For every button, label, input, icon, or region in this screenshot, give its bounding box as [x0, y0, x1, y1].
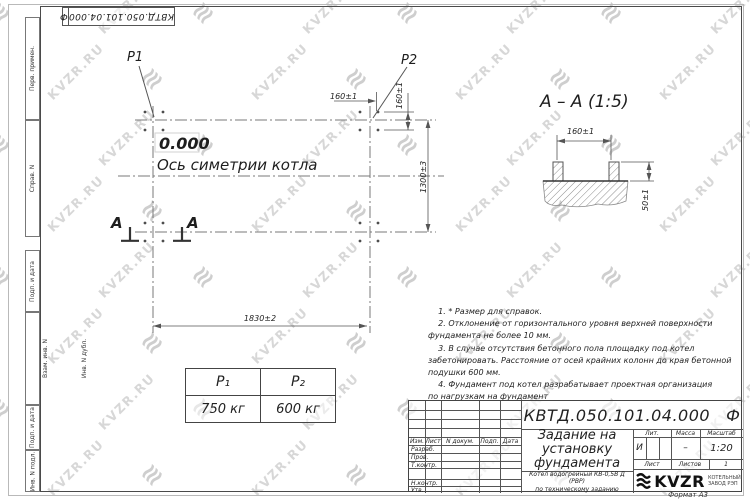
elevation-mark: 0.000	[159, 134, 210, 153]
load-point-leaders	[139, 66, 407, 118]
dim-bolt-spacing-y: 160±1	[395, 82, 404, 109]
tb-document-title: Задание на установку фундамента	[521, 429, 633, 471]
tb-sheet-label: Лист	[633, 459, 671, 469]
section-letter-left: А	[111, 214, 123, 232]
tb-designation-suffix: Ф	[726, 406, 740, 425]
tb-role-tkontr: Т.контр.	[411, 462, 441, 469]
dim-foundation-height: 1300±3	[419, 161, 428, 193]
tb-scale-label: Масштаб	[700, 429, 743, 437]
note-line: подушки 600 мм.	[428, 367, 740, 379]
tb-col-izm: Изм.	[409, 437, 425, 445]
note-line: 2. Отклонение от горизонтального уровня …	[428, 318, 740, 330]
dim-section-height: 50±1	[641, 189, 650, 211]
tb-product-line1: Котел водогрейный КВ-0,5В Д (РВР)	[521, 471, 633, 486]
tb-designation-number: КВТД.050.101.04.000	[524, 406, 710, 425]
tb-lit-value: И	[633, 437, 646, 459]
tb-product-line2: по техническому заданию	[535, 486, 618, 494]
tb-product-name: Котел водогрейный КВ-0,5В Д (РВР) по тех…	[521, 471, 633, 493]
tb-role-prov: Пров.	[411, 454, 441, 461]
note-line: забетонировать. Расстояние от осей крайн…	[428, 355, 740, 367]
load-point-p1-label: Р1	[127, 50, 143, 65]
tb-role-nkontr: Н.контр.	[411, 480, 441, 487]
section-view-title: А – А (1:5)	[540, 92, 629, 112]
loads-table-header-p1: Р₁	[186, 369, 260, 395]
loads-table: Р₁ Р₂ 750 кг 600 кг	[185, 368, 336, 423]
loads-table-header-p2: Р₂	[260, 369, 335, 395]
drawing-sheet: ≋KVZR.RU≋KVZR.RU≋KVZR.RU≋KVZR.RUKVZR.RU≋…	[0, 0, 750, 500]
tb-col-podp: Подп.	[479, 437, 500, 445]
tb-col-list: Лист	[425, 437, 441, 445]
loads-table-value-p2: 600 кг	[260, 396, 335, 422]
tb-scale-value: 1:20	[700, 437, 743, 459]
dim-bolt-spacing-x: 160±1	[330, 92, 357, 101]
tb-sheets-count: 1	[709, 459, 743, 469]
tb-logo-tagline-2: ЗАВОД РЭП	[708, 481, 741, 487]
note-line: 4. Фундамент под котел разрабатывает про…	[428, 379, 740, 391]
boiler-symmetry-axis-label: Ось симетрии котла	[157, 156, 317, 174]
tb-role-razrab: Разраб.	[411, 446, 441, 453]
tb-designation: КВТД.050.101.04.000 Ф	[521, 401, 743, 429]
technical-notes: 1. * Размер для справок. 2. Отклонение о…	[428, 306, 740, 404]
section-letter-right: А	[187, 214, 199, 232]
tb-role-utv: Утв.	[411, 487, 441, 494]
tb-col-ndoc: N докум.	[441, 437, 479, 445]
tb-lit-label: Лит.	[633, 429, 671, 437]
title-block: Изм. Лист N докум. Подп. Дата Разраб. Пр…	[408, 400, 742, 492]
note-line: фундамента не более 10 мм.	[428, 330, 740, 342]
tb-sheets-label: Листов	[671, 459, 709, 469]
tb-mass-label: Масса	[671, 429, 700, 437]
tb-company-logo: KVZR КОТЕЛЬНЫЙ ЗАВОД РЭП	[633, 469, 743, 493]
tb-logo-text: KVZR	[654, 472, 705, 491]
kvzr-logo-icon	[635, 472, 651, 490]
loads-table-value-row: 750 кг 600 кг	[186, 395, 335, 422]
dim-foundation-width: 1830±2	[236, 314, 284, 323]
section-cut-marks	[121, 227, 191, 241]
format-note: Формат А3	[648, 491, 728, 499]
section-view-geometry	[543, 162, 628, 207]
note-line: 3. В случае отсутствия бетонного пола пл…	[428, 343, 740, 355]
note-line: 1. * Размер для справок.	[428, 306, 740, 318]
loads-table-header-row: Р₁ Р₂	[186, 369, 335, 395]
tb-col-data: Дата	[500, 437, 521, 445]
dim-section-spacing: 160±1	[567, 127, 594, 136]
load-point-p2-label: Р2	[401, 53, 417, 68]
tb-mass-value: –	[671, 437, 700, 459]
loads-table-value-p1: 750 кг	[186, 396, 260, 422]
